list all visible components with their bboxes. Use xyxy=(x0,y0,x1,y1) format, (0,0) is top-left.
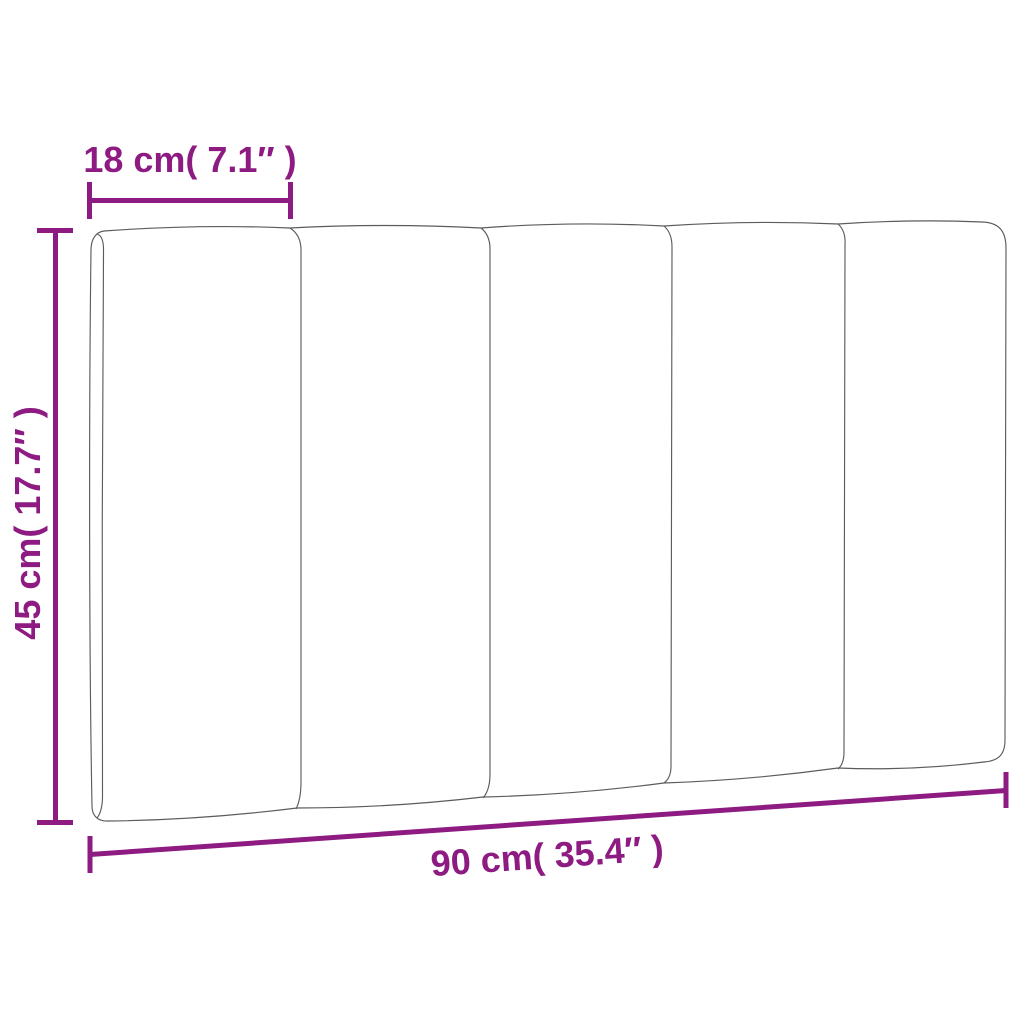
svg-text:45 cm( 17.7″ ): 45 cm( 17.7″ ) xyxy=(7,406,48,639)
svg-text:90 cm( 35.4″ ): 90 cm( 35.4″ ) xyxy=(429,827,665,884)
svg-text:18 cm( 7.1″ ): 18 cm( 7.1″ ) xyxy=(83,139,296,180)
